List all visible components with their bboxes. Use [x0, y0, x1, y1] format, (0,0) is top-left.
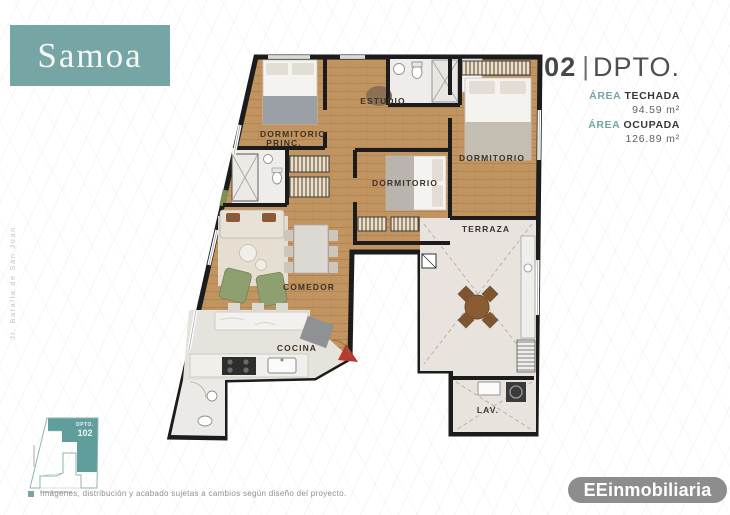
agency-logo: EEinmobiliaria	[568, 477, 727, 503]
wardrobe	[358, 217, 386, 231]
area-techada-label: ÁREA TECHADA	[589, 90, 680, 102]
wardrobe	[391, 217, 419, 231]
label-cocina: COCINA	[277, 343, 317, 353]
label-estudio: ESTUDIO	[360, 96, 405, 106]
wardrobe	[456, 61, 530, 75]
kitchen-faucet	[281, 359, 284, 362]
street-name-vertical: Jr. Batalla de San Juan	[8, 205, 17, 340]
label-lav: LAV.	[477, 405, 499, 415]
unit-separator: |	[582, 51, 589, 82]
label-dormitorio-right: DORMITORIO	[459, 153, 525, 163]
area-stats: ÁREA TECHADA 94.59 m² ÁREA OCUPADA 126.8…	[588, 88, 680, 146]
label-dormitorio-mid: DORMITORIO	[372, 178, 438, 188]
disclaimer: Imágenes, distribución y acabado sujetas…	[28, 489, 346, 498]
sheet: Samoa 102 | DPTO. ÁREA TECHADA 94.59 m² …	[0, 0, 730, 515]
brand-logo: Samoa	[10, 25, 170, 86]
agency-logo-text: EEinmobiliaria	[584, 480, 712, 501]
bed-right	[465, 78, 531, 160]
terraza-sink	[524, 264, 532, 272]
label-dormitorio-princ-2: PRINC.	[266, 138, 301, 148]
terraza-ladder	[517, 340, 535, 372]
laundry-sink	[478, 382, 500, 395]
wardrobe	[289, 177, 329, 197]
floor-plan: DORMITORIO PRINC. ESTUDIO DORMITORIO DOR…	[160, 20, 560, 460]
key-plan-street-label-left	[33, 445, 35, 467]
sofa-pillow	[262, 213, 276, 222]
washer	[506, 382, 526, 402]
area-ocupada-value: 126.89 m²	[588, 132, 680, 146]
kitchen-island	[215, 312, 308, 330]
disclaimer-bullet	[28, 491, 34, 497]
bed-principal	[263, 60, 317, 124]
coffee-table-small	[256, 260, 267, 271]
disclaimer-text: Imágenes, distribución y acabado sujetas…	[40, 489, 346, 498]
key-plan: DPTO. 102	[28, 410, 106, 494]
terraza-counter	[521, 236, 535, 338]
stove	[222, 357, 256, 375]
label-comedor: COMEDOR	[283, 282, 335, 292]
terraza-step	[422, 254, 436, 268]
area-ocupada-label: ÁREA OCUPADA	[588, 119, 680, 131]
key-plan-number: 102	[77, 428, 92, 438]
label-terraza: TERRAZA	[462, 224, 510, 234]
coffee-table	[240, 245, 257, 262]
brand-logo-text: Samoa	[37, 36, 142, 76]
dining-table	[294, 225, 328, 273]
wardrobe	[289, 156, 329, 172]
area-techada-value: 94.59 m²	[588, 103, 680, 117]
unit-type: DPTO.	[593, 52, 680, 83]
sofa-pillow	[226, 213, 240, 222]
bar-stools	[228, 303, 288, 311]
